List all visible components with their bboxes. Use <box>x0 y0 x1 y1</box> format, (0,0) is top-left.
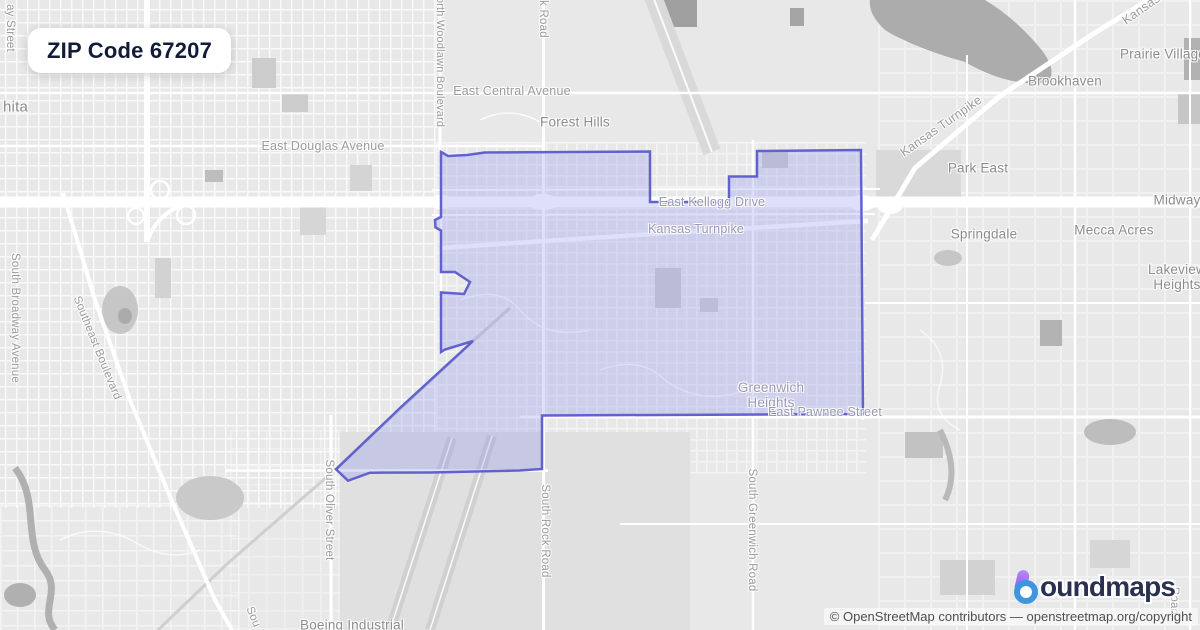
boundmaps-logo-text: oundmaps <box>1040 571 1175 603</box>
place-label-prairie-village: Prairie Village <box>1120 47 1200 62</box>
city-label-wichita: hita <box>3 99 28 116</box>
place-label-midway: Midway <box>1154 193 1200 208</box>
pond <box>4 583 36 607</box>
logo-b-bowl <box>1014 580 1038 604</box>
place-label-brookhaven: Brookhaven <box>1028 74 1102 89</box>
street-label-east-pawnee-street: East Pawnee Street <box>768 405 882 419</box>
street-label-south-rock-road: South Rock Road <box>539 484 551 577</box>
place-label-springdale: Springdale <box>951 227 1018 242</box>
place-label-lakeview-heights: Lakeview Heights <box>1133 262 1200 292</box>
zip-code-badge: ZIP Code 67207 <box>28 28 231 73</box>
street-label-south-oliver-street: South Oliver Street <box>323 460 335 561</box>
boundmaps-b-icon <box>1012 568 1043 606</box>
street-label-ay-street: ay Street <box>4 4 16 52</box>
place-label-boeing-industrial: Boeing Industrial <box>300 618 404 630</box>
street-label-east-central-avenue: East Central Avenue <box>453 84 571 98</box>
street-label-kansas-turnpike-inner: Kansas Turnpike <box>648 222 744 236</box>
boundmaps-logo: oundmaps <box>1012 567 1175 607</box>
street-label-east-kellogg-drive: East Kellogg Drive <box>659 195 765 209</box>
street-label-south-greenwich-road: South Greenwich Road <box>746 469 758 592</box>
map-artwork <box>0 0 1200 630</box>
place-label-park-east: Park East <box>948 161 1008 176</box>
street-label-north-woodlawn-boulevard: orth Woodlawn Boulevard <box>434 0 446 127</box>
osm-attribution[interactable]: © OpenStreetMap contributors — openstree… <box>824 608 1198 625</box>
street-label-rock-road-north: k Road <box>537 0 549 38</box>
place-label-mecca-acres: Mecca Acres <box>1074 223 1153 238</box>
street-label-east-douglas-avenue: East Douglas Avenue <box>261 139 384 153</box>
place-label-forest-hills: Forest Hills <box>540 115 610 130</box>
map-canvas: hita ay Street South Broadway Avenue Sou… <box>0 0 1200 630</box>
street-label-south-broadway-avenue: South Broadway Avenue <box>9 253 21 383</box>
zip-code-title: ZIP Code 67207 <box>47 38 212 64</box>
